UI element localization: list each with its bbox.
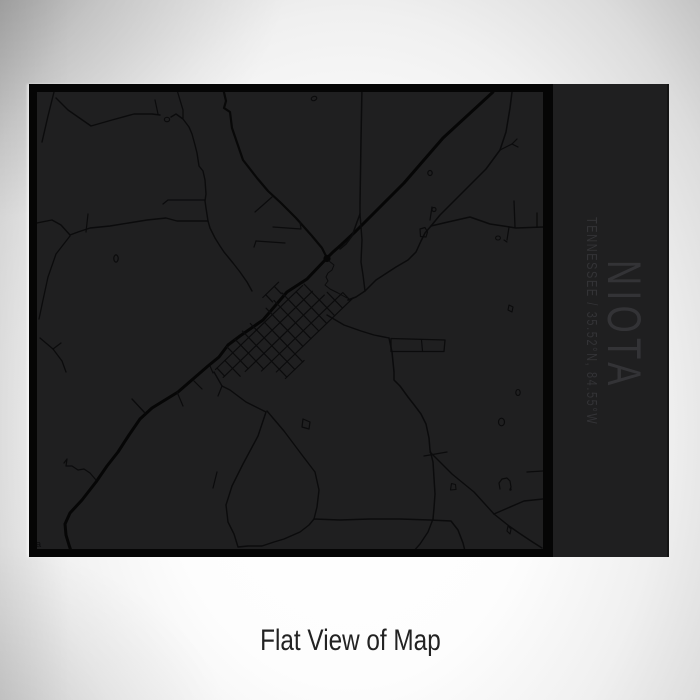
svg-text:a: a bbox=[36, 539, 41, 549]
